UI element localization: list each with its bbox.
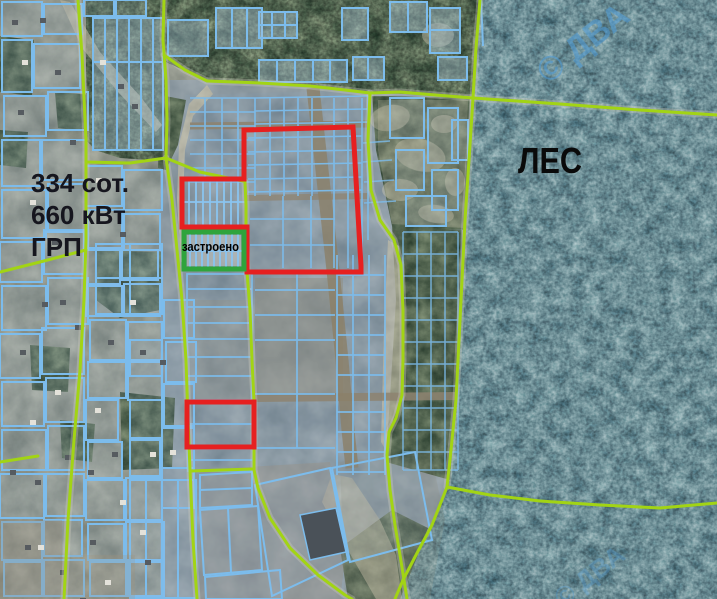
svg-text:ГРП: ГРП: [31, 232, 82, 262]
svg-text:660 кВт: 660 кВт: [31, 200, 126, 230]
svg-text:334 сот.: 334 сот.: [31, 168, 129, 198]
svg-text:застроено: застроено: [182, 240, 239, 254]
svg-text:ЛЕС: ЛЕС: [518, 140, 582, 181]
